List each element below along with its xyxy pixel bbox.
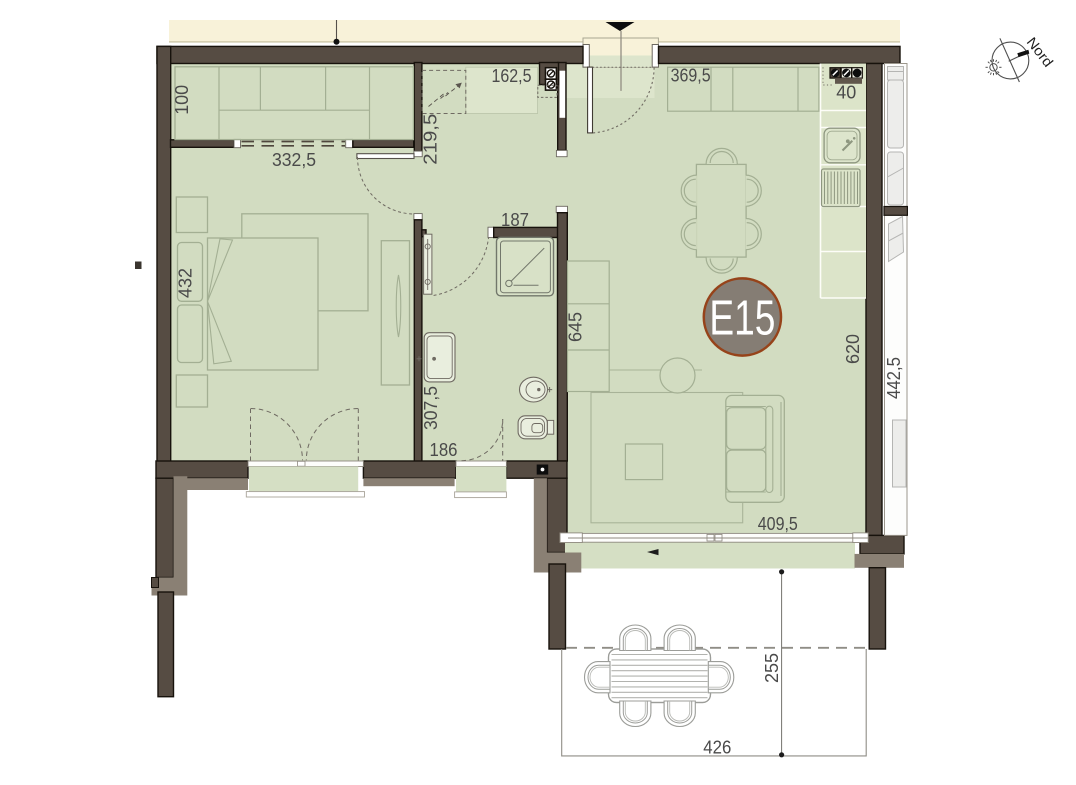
svg-text:E15: E15 — [709, 292, 775, 346]
svg-text:432: 432 — [174, 268, 195, 298]
svg-text:620: 620 — [842, 334, 863, 364]
svg-text:100: 100 — [171, 85, 192, 115]
svg-text:369,5: 369,5 — [671, 64, 711, 85]
svg-text:332,5: 332,5 — [272, 149, 316, 170]
svg-text:40: 40 — [836, 82, 856, 103]
svg-text:442,5: 442,5 — [883, 357, 904, 399]
svg-text:219,5: 219,5 — [420, 114, 441, 165]
svg-text:426: 426 — [703, 736, 731, 757]
svg-text:162,5: 162,5 — [492, 65, 532, 86]
svg-text:307,5: 307,5 — [420, 386, 441, 430]
svg-text:255: 255 — [761, 653, 782, 683]
svg-text:645: 645 — [564, 312, 585, 342]
svg-text:186: 186 — [430, 439, 458, 460]
svg-text:409,5: 409,5 — [758, 513, 798, 534]
svg-text:187: 187 — [501, 209, 529, 230]
